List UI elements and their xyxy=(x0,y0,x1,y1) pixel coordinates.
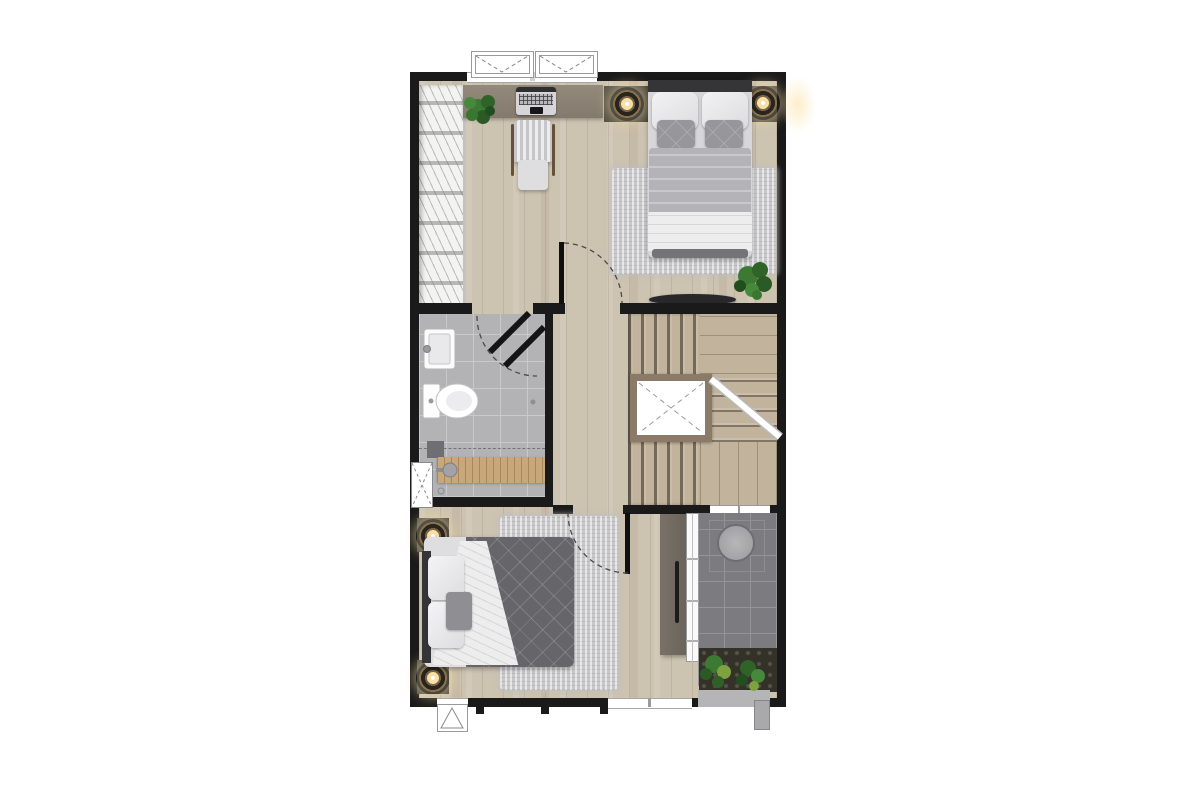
washbasin xyxy=(424,329,456,369)
balcony-plant-1 xyxy=(700,655,731,688)
symbol-overlay xyxy=(0,0,1200,800)
toilet xyxy=(423,384,478,418)
stair-void-x xyxy=(639,383,703,433)
floorplan-canvas xyxy=(0,0,1200,800)
master-door xyxy=(559,242,622,304)
top-casement-window-2 xyxy=(536,52,598,78)
desk-plant xyxy=(464,95,495,124)
bathroom-door xyxy=(477,313,544,376)
top-casement-window-1 xyxy=(472,52,534,78)
balcony-plant-2 xyxy=(736,660,765,691)
service-shaft xyxy=(412,463,433,508)
bottom-awning-window-symbol xyxy=(438,705,468,732)
master-floor-plant xyxy=(734,262,772,300)
bedroom2-door xyxy=(568,513,630,574)
stair-handrail xyxy=(711,379,780,437)
